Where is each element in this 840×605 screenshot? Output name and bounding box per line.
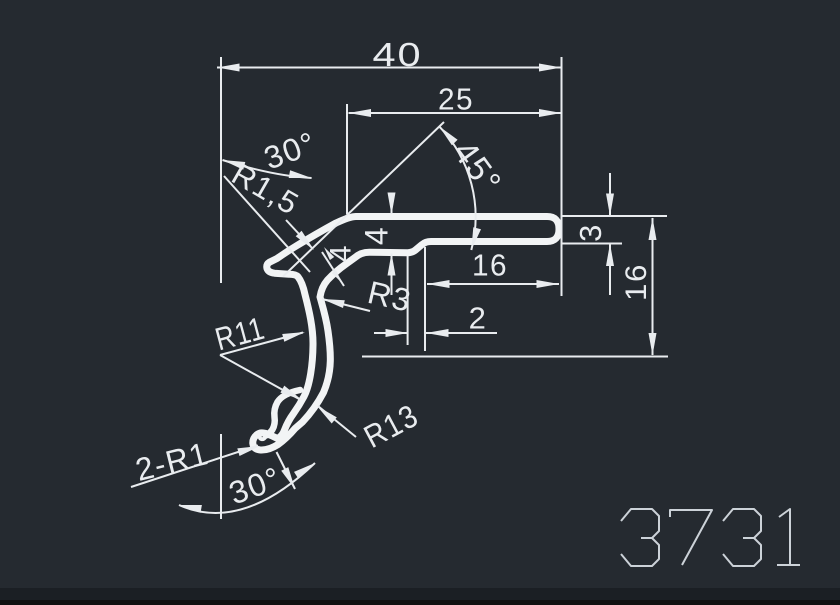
svg-text:4: 4	[324, 244, 357, 262]
svg-text:40: 40	[373, 36, 423, 73]
svg-text:4: 4	[359, 226, 395, 245]
svg-text:2: 2	[469, 301, 488, 336]
svg-text:16: 16	[620, 263, 653, 301]
svg-text:16: 16	[472, 248, 508, 283]
svg-text:25: 25	[438, 82, 474, 117]
svg-text:3: 3	[573, 223, 608, 242]
